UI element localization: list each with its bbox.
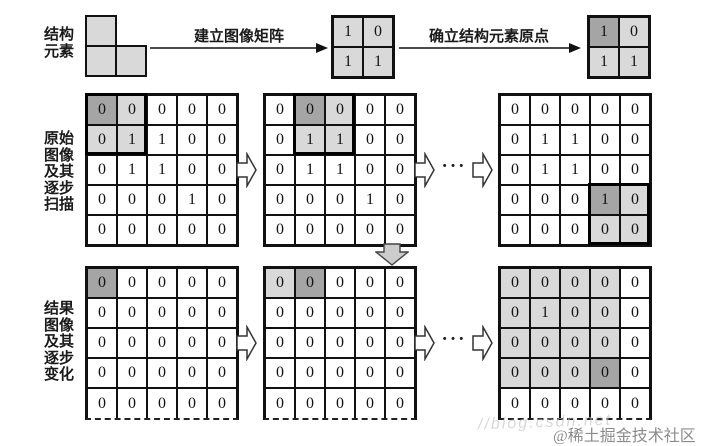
original-matrix-final: 0000001100011000001000000 bbox=[498, 93, 652, 247]
matrix-cell: 1 bbox=[590, 185, 620, 215]
matrix-cell: 0 bbox=[530, 268, 560, 298]
matrix-cell: 0 bbox=[87, 298, 117, 328]
matrix-cell: 0 bbox=[295, 358, 325, 388]
matrix-cell: 0 bbox=[560, 185, 590, 215]
matrix-cell: 0 bbox=[590, 298, 620, 328]
community-watermark: @稀土掘金技术社区 bbox=[553, 422, 696, 446]
down-arrow-icon bbox=[375, 243, 409, 266]
matrix-cell: 0 bbox=[500, 358, 530, 388]
matrix-cell: 0 bbox=[325, 215, 355, 245]
matrix-cell: 0 bbox=[87, 95, 117, 125]
se-matrix: 1011 bbox=[331, 15, 395, 79]
matrix-cell: 0 bbox=[117, 215, 147, 245]
matrix-cell: 0 bbox=[500, 388, 530, 418]
right-line-arrow-icon bbox=[150, 41, 328, 55]
matrix-cell: 0 bbox=[87, 215, 117, 245]
matrix-cell: 0 bbox=[295, 95, 325, 125]
matrix-cell: 0 bbox=[295, 388, 325, 418]
matrix-cell: 0 bbox=[147, 185, 177, 215]
ellipsis-text: ··· bbox=[440, 329, 468, 351]
matrix-cell: 0 bbox=[590, 125, 620, 155]
matrix-cell: 1 bbox=[147, 155, 177, 185]
matrix-cell: 0 bbox=[500, 298, 530, 328]
matrix-cell: 0 bbox=[385, 95, 415, 125]
matrix-cell: 0 bbox=[177, 298, 207, 328]
matrix-cell: 0 bbox=[325, 358, 355, 388]
matrix-cell: 0 bbox=[500, 268, 530, 298]
matrix-cell: 0 bbox=[87, 388, 117, 418]
matrix-cell: 1 bbox=[295, 155, 325, 185]
matrix-cell: 0 bbox=[355, 95, 385, 125]
matrix-cell: 0 bbox=[207, 155, 237, 185]
matrix-cell: 0 bbox=[500, 155, 530, 185]
matrix-cell: 0 bbox=[265, 388, 295, 418]
matrix-cell: 0 bbox=[207, 298, 237, 328]
matrix-cell: 0 bbox=[620, 95, 650, 125]
matrix-cell: 0 bbox=[117, 95, 147, 125]
matrix-cell: 0 bbox=[355, 298, 385, 328]
matrix-cell: 0 bbox=[385, 298, 415, 328]
matrix-cell: 0 bbox=[325, 95, 355, 125]
matrix-cell: 0 bbox=[620, 298, 650, 328]
matrix-cell: 0 bbox=[385, 155, 415, 185]
matrix-cell: 0 bbox=[295, 328, 325, 358]
matrix-cell: 0 bbox=[265, 125, 295, 155]
matrix-cell: 0 bbox=[560, 215, 590, 245]
matrix-cell: 0 bbox=[590, 358, 620, 388]
right-line-arrow-icon bbox=[399, 41, 581, 55]
matrix-cell: 0 bbox=[177, 215, 207, 245]
structure-element-label: 结构 元素 bbox=[44, 27, 74, 60]
matrix-cell: 0 bbox=[530, 95, 560, 125]
matrix-cell: 1 bbox=[560, 155, 590, 185]
matrix-cell: 0 bbox=[620, 125, 650, 155]
matrix-cell: 0 bbox=[325, 328, 355, 358]
matrix-cell: 0 bbox=[560, 328, 590, 358]
matrix-cell: 0 bbox=[207, 358, 237, 388]
matrix-cell: 0 bbox=[87, 328, 117, 358]
matrix-cell: 0 bbox=[117, 328, 147, 358]
matrix-cell: 1 bbox=[117, 125, 147, 155]
matrix-cell: 0 bbox=[560, 358, 590, 388]
original-image-label: 原始 图像 及其 逐步 扫描 bbox=[44, 131, 74, 214]
structure-element-shape bbox=[85, 15, 147, 77]
se-origin-matrix: 1011 bbox=[587, 15, 651, 79]
original-matrix-step1: 0000001100011000001000000 bbox=[85, 93, 239, 247]
matrix-cell: 0 bbox=[500, 125, 530, 155]
matrix-cell: 1 bbox=[325, 155, 355, 185]
matrix-cell: 0 bbox=[147, 268, 177, 298]
matrix-cell: 0 bbox=[207, 388, 237, 418]
matrix-cell: 0 bbox=[620, 388, 650, 418]
matrix-cell: 0 bbox=[117, 388, 147, 418]
matrix-cell: 1 bbox=[147, 125, 177, 155]
matrix-cell: 1 bbox=[177, 185, 207, 215]
matrix-cell: 0 bbox=[355, 268, 385, 298]
hollow-right-arrow-icon bbox=[472, 152, 494, 188]
matrix-cell: 0 bbox=[620, 328, 650, 358]
matrix-cell: 0 bbox=[87, 185, 117, 215]
matrix-cell: 1 bbox=[530, 155, 560, 185]
matrix-cell: 0 bbox=[620, 268, 650, 298]
matrix-cell: 0 bbox=[177, 358, 207, 388]
matrix-cell: 0 bbox=[325, 185, 355, 215]
matrix-cell: 0 bbox=[207, 268, 237, 298]
matrix-cell: 0 bbox=[355, 328, 385, 358]
matrix-cell: 0 bbox=[500, 185, 530, 215]
matrix-cell: 0 bbox=[295, 268, 325, 298]
result-matrix-step1: 0000000000000000000000000 bbox=[85, 266, 239, 420]
matrix-cell: 0 bbox=[385, 215, 415, 245]
matrix-cell: 0 bbox=[325, 268, 355, 298]
matrix-cell: 0 bbox=[500, 95, 530, 125]
result-matrix-step2: 0000000000000000000000000 bbox=[263, 266, 417, 420]
matrix-cell: 0 bbox=[177, 388, 207, 418]
matrix-cell: 0 bbox=[265, 215, 295, 245]
matrix-cell: 0 bbox=[207, 185, 237, 215]
matrix-cell: 0 bbox=[620, 155, 650, 185]
matrix-cell: 1 bbox=[295, 125, 325, 155]
matrix-cell: 0 bbox=[177, 268, 207, 298]
matrix-cell: 0 bbox=[530, 328, 560, 358]
matrix-cell: 1 bbox=[117, 155, 147, 185]
matrix-cell: 0 bbox=[385, 358, 415, 388]
hollow-right-arrow-icon bbox=[472, 325, 494, 361]
matrix-cell: 0 bbox=[147, 298, 177, 328]
matrix-cell: 0 bbox=[500, 328, 530, 358]
matrix-cell: 0 bbox=[147, 358, 177, 388]
matrix-cell: 1 bbox=[363, 47, 393, 77]
hollow-right-arrow-icon bbox=[236, 152, 258, 188]
matrix-cell: 1 bbox=[333, 47, 363, 77]
matrix-cell: 0 bbox=[590, 328, 620, 358]
hollow-right-arrow-icon bbox=[414, 325, 436, 361]
matrix-cell: 0 bbox=[117, 185, 147, 215]
matrix-cell: 0 bbox=[265, 155, 295, 185]
matrix-cell: 1 bbox=[589, 47, 619, 77]
matrix-cell: 0 bbox=[355, 388, 385, 418]
matrix-cell: 1 bbox=[333, 17, 363, 47]
result-matrix-final: 0000001000000000000000000 bbox=[498, 266, 652, 420]
matrix-cell: 0 bbox=[265, 268, 295, 298]
matrix-cell: 0 bbox=[265, 328, 295, 358]
matrix-cell: 0 bbox=[265, 298, 295, 328]
matrix-cell: 0 bbox=[117, 268, 147, 298]
matrix-cell: 0 bbox=[620, 185, 650, 215]
matrix-cell: 0 bbox=[363, 17, 393, 47]
matrix-cell: 0 bbox=[265, 185, 295, 215]
matrix-cell: 0 bbox=[295, 215, 325, 245]
matrix-cell: 0 bbox=[147, 388, 177, 418]
matrix-cell: 0 bbox=[207, 328, 237, 358]
matrix-cell: 0 bbox=[590, 215, 620, 245]
matrix-cell: 0 bbox=[87, 125, 117, 155]
matrix-cell: 0 bbox=[385, 125, 415, 155]
matrix-cell: 0 bbox=[295, 298, 325, 328]
matrix-cell: 1 bbox=[589, 17, 619, 47]
original-matrix-step2: 0000001100011000001000000 bbox=[263, 93, 417, 247]
matrix-cell: 0 bbox=[177, 328, 207, 358]
matrix-cell: 1 bbox=[355, 185, 385, 215]
matrix-cell: 0 bbox=[265, 358, 295, 388]
matrix-cell: 0 bbox=[385, 185, 415, 215]
matrix-cell: 0 bbox=[325, 298, 355, 328]
matrix-cell: 0 bbox=[87, 155, 117, 185]
matrix-cell: 0 bbox=[355, 215, 385, 245]
matrix-cell: 0 bbox=[530, 215, 560, 245]
matrix-cell: 0 bbox=[590, 155, 620, 185]
matrix-cell: 0 bbox=[530, 358, 560, 388]
matrix-cell: 0 bbox=[87, 358, 117, 388]
matrix-cell: 1 bbox=[619, 47, 649, 77]
matrix-cell: 0 bbox=[620, 215, 650, 245]
matrix-cell: 1 bbox=[325, 125, 355, 155]
matrix-cell: 0 bbox=[355, 358, 385, 388]
matrix-cell: 0 bbox=[385, 388, 415, 418]
matrix-cell: 0 bbox=[590, 268, 620, 298]
matrix-cell: 0 bbox=[87, 268, 117, 298]
matrix-cell: 0 bbox=[207, 215, 237, 245]
matrix-cell: 1 bbox=[530, 125, 560, 155]
matrix-cell: 0 bbox=[355, 125, 385, 155]
matrix-cell: 0 bbox=[147, 328, 177, 358]
matrix-cell: 0 bbox=[530, 185, 560, 215]
matrix-cell: 0 bbox=[620, 358, 650, 388]
matrix-cell: 0 bbox=[500, 215, 530, 245]
matrix-cell: 0 bbox=[207, 95, 237, 125]
matrix-cell: 0 bbox=[265, 95, 295, 125]
matrix-cell: 0 bbox=[207, 125, 237, 155]
matrix-cell: 0 bbox=[117, 298, 147, 328]
result-image-label: 结果 图像 及其 逐步 变化 bbox=[44, 301, 74, 384]
hollow-right-arrow-icon bbox=[414, 152, 436, 188]
matrix-cell: 0 bbox=[385, 328, 415, 358]
matrix-cell: 0 bbox=[177, 125, 207, 155]
matrix-cell: 0 bbox=[147, 95, 177, 125]
matrix-cell: 0 bbox=[560, 95, 590, 125]
matrix-cell: 1 bbox=[530, 298, 560, 328]
matrix-cell: 1 bbox=[560, 125, 590, 155]
matrix-cell: 0 bbox=[560, 268, 590, 298]
matrix-cell: 0 bbox=[560, 298, 590, 328]
matrix-cell: 0 bbox=[295, 185, 325, 215]
matrix-cell: 0 bbox=[177, 95, 207, 125]
matrix-cell: 0 bbox=[619, 17, 649, 47]
matrix-cell: 0 bbox=[590, 95, 620, 125]
matrix-cell: 0 bbox=[355, 155, 385, 185]
matrix-cell: 0 bbox=[385, 268, 415, 298]
matrix-cell: 0 bbox=[325, 388, 355, 418]
diagram-canvas: 结构 元素 建立图像矩阵 1011 确立结构元素原点 1011 原始 图像 及其… bbox=[0, 0, 710, 446]
hollow-right-arrow-icon bbox=[236, 325, 258, 361]
matrix-cell: 0 bbox=[117, 358, 147, 388]
matrix-cell: 0 bbox=[147, 215, 177, 245]
ellipsis-text: ··· bbox=[440, 156, 468, 178]
matrix-cell: 0 bbox=[177, 155, 207, 185]
